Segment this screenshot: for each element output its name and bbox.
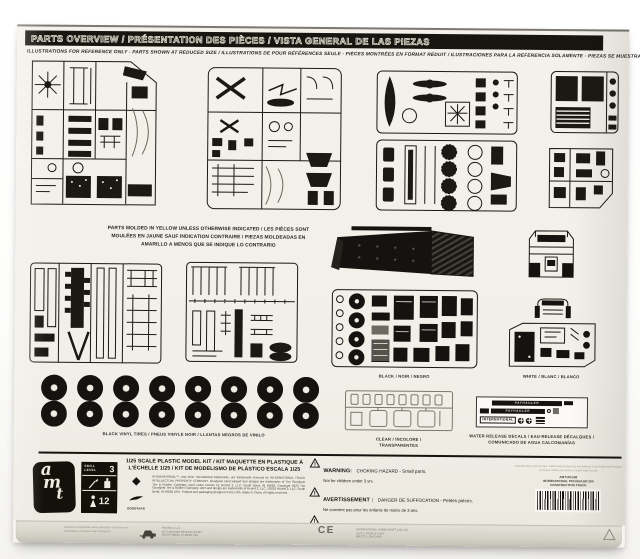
sprue-illustration-4 (546, 145, 617, 212)
scale-and-legal-block: 1/25 SCALE PLASTIC MODEL KIT / KIT MAQUE… (123, 458, 305, 511)
sprue-illustration-5 (26, 259, 165, 366)
wheel-emblem-icon (518, 418, 524, 424)
decal-payhauler-1: PAYHAULER (492, 400, 562, 406)
warning-row: ! WARNING: CHOKING HAZARD - Small parts.… (309, 458, 487, 485)
box-bottom-edge: Conforms to applicable safety standards.… (16, 520, 622, 547)
tire (293, 403, 319, 429)
barcode (537, 490, 599, 510)
sprue-illustration-1 (28, 57, 171, 208)
tire (149, 402, 175, 428)
wheel-emblem-icon (526, 418, 532, 424)
decal-ring (547, 409, 551, 413)
tire (113, 401, 139, 427)
model-kit-box: PARTS OVERVIEW / PRÉSENTATION DES PIÈCES… (13, 24, 629, 547)
product-name-line2: CONSTRUCTION TRUCK (509, 483, 627, 488)
tire (185, 402, 211, 428)
tire (257, 402, 283, 428)
round2-logo (138, 525, 158, 544)
sprue-illustration-3 (373, 67, 521, 214)
tire (113, 375, 139, 401)
product-id-block: Manufactured under license. Trademarks l… (509, 465, 627, 511)
tire (77, 401, 103, 427)
distributor-city: BRISTOL, ENGLAND (356, 536, 409, 540)
black-parts-sprue (329, 287, 480, 370)
decal-block (480, 408, 489, 413)
tires-label: BLACK VINYL TIRES / PNEUS VINYLE NOIR / … (44, 431, 324, 440)
skill-number: 3 (109, 464, 114, 474)
goodyear-wingfoot-icon (128, 495, 144, 501)
white-parts-label: WHITE / BLANC / BLANCO (492, 373, 610, 380)
black-parts-label: BLACK / NOIR / NEGRO (329, 373, 479, 380)
diamond-icon (132, 477, 140, 485)
ce-mark: CE (318, 525, 335, 536)
maker-city: SOUTH BEND, IN 46628 USA (162, 534, 202, 538)
decal-block (553, 408, 559, 414)
dump-bed-illustration (329, 225, 478, 284)
tire (221, 402, 247, 428)
banner-title: PARTS OVERVIEW / PRÉSENTATION DES PIÈCES… (31, 33, 430, 46)
tire (257, 376, 283, 402)
warning-triangle-icon: ! (309, 458, 320, 468)
tire (221, 376, 247, 402)
edge-warning-triangle-icon (603, 527, 616, 545)
svg-text:!: ! (314, 491, 316, 497)
clear-parts-sprue (344, 389, 454, 432)
legal-fine-print: INTERNATIONAL™, and other International … (152, 475, 305, 511)
box-back-face: PARTS OVERVIEW / PRÉSENTATION DES PIÈCES… (13, 24, 629, 525)
tire (149, 376, 175, 402)
paintbrush-icon (88, 477, 99, 488)
amt-logo: a m t (33, 461, 76, 513)
decal-stripes (536, 417, 545, 424)
sprue-illustration-6 (182, 259, 301, 366)
license-fine-print: Manufactured under license. Trademarks l… (509, 465, 627, 473)
scale-text: 1/25 SCALE PLASTIC MODEL KIT / KIT MAQUE… (123, 458, 305, 474)
ages-number: 12 (99, 496, 110, 507)
photo-background: PARTS OVERVIEW / PRÉSENTATION DES PIÈCES… (0, 0, 640, 559)
warning-triangle-icon: ! (309, 487, 320, 497)
decal-international: INTERNATIONAL (480, 416, 516, 424)
tire (41, 375, 67, 401)
decal-block (564, 401, 573, 406)
cab-illustration (523, 227, 579, 281)
warning-row: ! AVERTISSEMENT : DANGER DE SUFFOCATION … (309, 487, 487, 514)
molded-color-note: PARTS MOLDED IN YELLOW UNLESS OTHERWISE … (79, 225, 337, 251)
tire (185, 376, 211, 402)
white-cab-part (533, 296, 573, 320)
white-parts-sprue (506, 320, 598, 371)
skill-level-badge: SKILLLEVEL 3 12 (81, 462, 117, 513)
parts-overview-banner: PARTS OVERVIEW / PRÉSENTATION DES PIÈCES… (25, 30, 603, 50)
svg-text:!: ! (314, 462, 316, 468)
sprue-illustration-grille (548, 69, 621, 136)
tire (77, 375, 103, 401)
bottom-edge-compliance-text: Conforms to applicable safety standards.… (64, 526, 136, 534)
sprue-illustration-2 (204, 64, 345, 213)
decal-payhauler-2: PAYHAULER (491, 408, 545, 413)
decals-label: WATER RELEASE DECALS / EAU-RELEASE DÉCAL… (462, 433, 602, 447)
goodyear-logo: GOODYEAR (123, 506, 149, 510)
tire (293, 377, 319, 403)
decal-sheet: PAYHAULER PAYHAULER INTERNATIONAL (476, 396, 588, 428)
tire (41, 401, 67, 427)
glue-bottle-icon (103, 477, 111, 489)
ages-person-icon (89, 495, 97, 508)
clear-parts-label: CLEAR / INCOLORE / TRANSPARENTES (362, 436, 436, 449)
